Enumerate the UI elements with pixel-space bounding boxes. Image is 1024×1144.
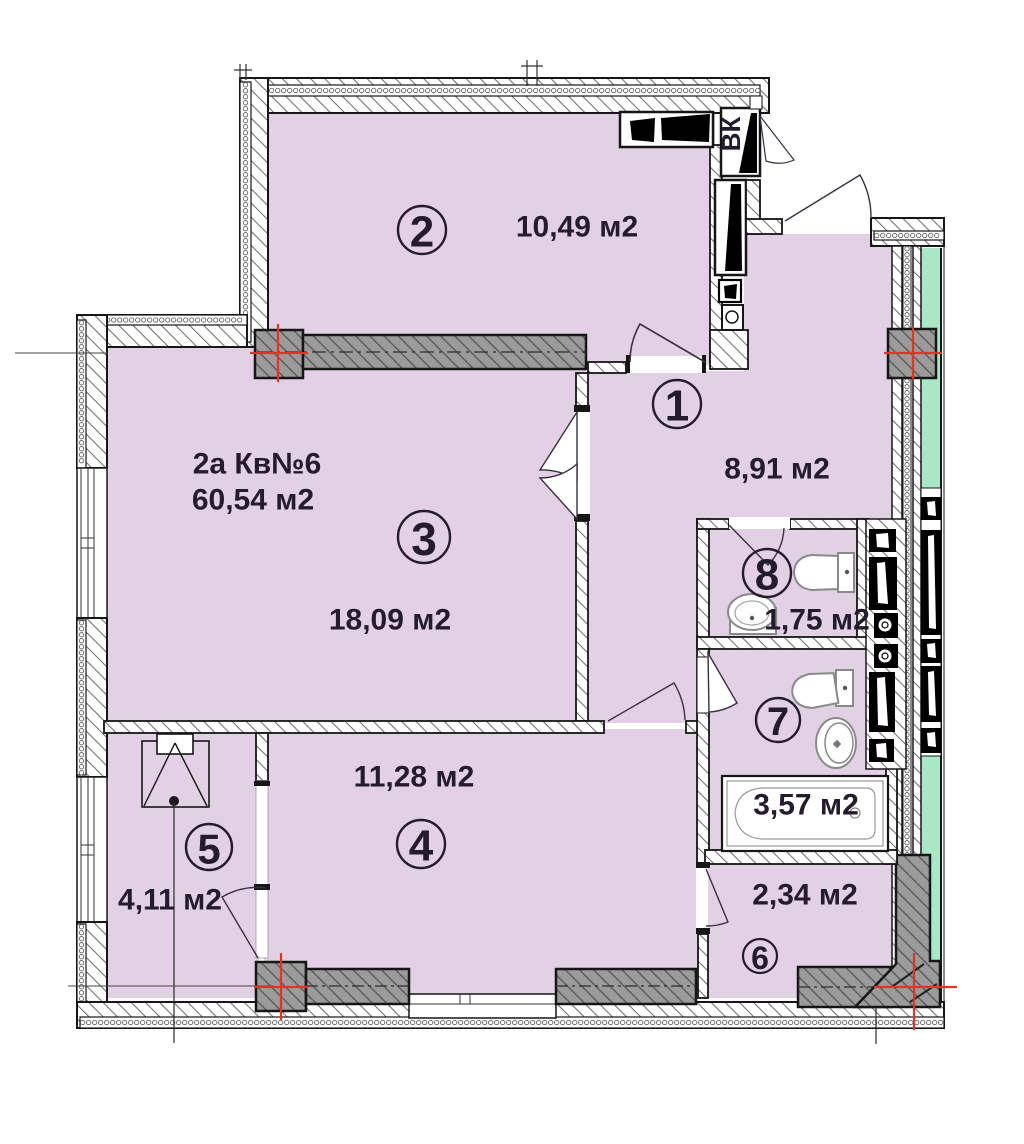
svg-text:11,28 м2: 11,28 м2	[354, 761, 475, 794]
svg-text:8,91 м2: 8,91 м2	[724, 453, 830, 486]
svg-text:2: 2	[410, 208, 434, 257]
svg-text:2,34 м2: 2,34 м2	[752, 879, 858, 912]
svg-text:3: 3	[411, 513, 437, 565]
svg-text:4: 4	[409, 822, 434, 871]
svg-text:7: 7	[767, 700, 789, 744]
svg-text:3,57 м2: 3,57 м2	[753, 789, 859, 822]
svg-text:18,09 м2: 18,09 м2	[329, 604, 451, 637]
svg-text:1,75 м2: 1,75 м2	[764, 604, 870, 637]
svg-text:6: 6	[751, 940, 769, 976]
svg-text:2а Кв№6: 2а Кв№6	[193, 448, 322, 481]
svg-text:4,11 м2: 4,11 м2	[118, 884, 222, 917]
svg-text:1: 1	[665, 382, 689, 431]
svg-text:10,49 м2: 10,49 м2	[516, 211, 638, 244]
svg-text:8: 8	[755, 551, 779, 600]
svg-text:60,54 м2: 60,54 м2	[192, 484, 314, 517]
svg-text:ВК: ВК	[716, 117, 746, 152]
svg-text:5: 5	[197, 826, 220, 873]
